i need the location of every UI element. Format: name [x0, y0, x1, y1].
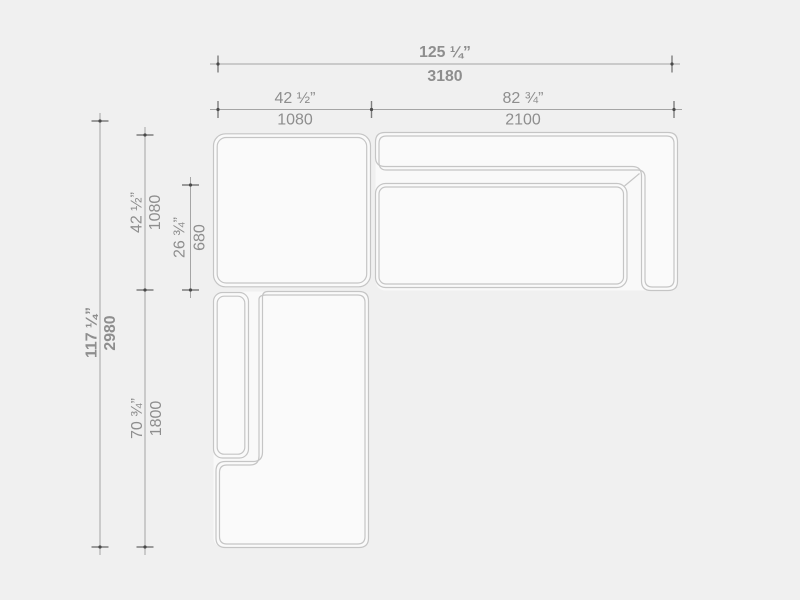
- svg-text:42 ½”: 42 ½”: [275, 90, 316, 107]
- svg-text:1080: 1080: [277, 112, 313, 129]
- svg-text:42 ½”: 42 ½”: [129, 192, 146, 233]
- svg-text:82 ¾”: 82 ¾”: [503, 90, 544, 107]
- svg-text:117 ¼”: 117 ¼”: [84, 307, 101, 358]
- svg-text:2100: 2100: [505, 112, 541, 129]
- svg-text:1800: 1800: [148, 401, 165, 437]
- svg-text:125 ¼”: 125 ¼”: [419, 44, 471, 61]
- svg-text:1080: 1080: [147, 195, 164, 231]
- svg-text:3180: 3180: [427, 68, 462, 85]
- svg-text:2980: 2980: [102, 315, 119, 350]
- svg-text:680: 680: [192, 224, 209, 251]
- svg-text:70 ¾”: 70 ¾”: [129, 398, 146, 439]
- svg-text:26 ¾”: 26 ¾”: [172, 217, 189, 258]
